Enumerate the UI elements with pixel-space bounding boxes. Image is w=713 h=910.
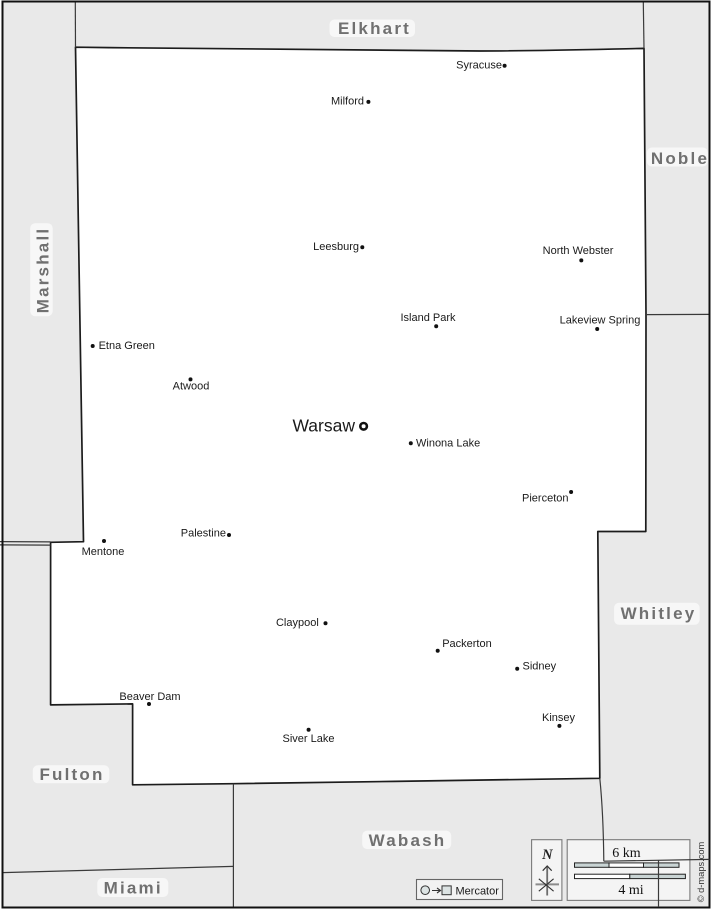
svg-text:Winona Lake: Winona Lake bbox=[416, 438, 480, 450]
svg-text:Beaver Dam: Beaver Dam bbox=[119, 691, 180, 703]
svg-text:Mentone: Mentone bbox=[82, 546, 125, 558]
svg-text:Whitley: Whitley bbox=[621, 604, 697, 623]
svg-text:Noble: Noble bbox=[651, 149, 709, 168]
svg-text:Wabash: Wabash bbox=[369, 831, 447, 850]
svg-text:Elkhart: Elkhart bbox=[338, 19, 411, 38]
svg-text:Sidney: Sidney bbox=[523, 661, 557, 673]
svg-text:Miami: Miami bbox=[104, 879, 163, 898]
svg-text:Warsaw: Warsaw bbox=[292, 415, 355, 435]
svg-text:Lakeview Spring: Lakeview Spring bbox=[560, 314, 641, 326]
svg-text:North Webster: North Webster bbox=[543, 245, 614, 257]
svg-text:4 mi: 4 mi bbox=[618, 883, 643, 898]
svg-text:Island Park: Island Park bbox=[400, 312, 456, 324]
svg-text:Syracuse: Syracuse bbox=[456, 60, 502, 72]
svg-text:Leesburg: Leesburg bbox=[313, 241, 359, 253]
svg-text:Claypool: Claypool bbox=[276, 617, 319, 629]
svg-text:Atwood: Atwood bbox=[173, 380, 210, 392]
svg-text:Mercator: Mercator bbox=[456, 886, 500, 898]
svg-text:Milford: Milford bbox=[331, 96, 364, 108]
svg-text:Pierceton: Pierceton bbox=[522, 493, 568, 505]
svg-text:Marshall: Marshall bbox=[34, 227, 53, 314]
svg-text:Siver Lake: Siver Lake bbox=[283, 733, 335, 745]
svg-text:N: N bbox=[541, 847, 553, 863]
svg-text:Etna Green: Etna Green bbox=[99, 340, 155, 352]
svg-text:Packerton: Packerton bbox=[442, 638, 492, 650]
svg-text:© d-maps.com: © d-maps.com bbox=[696, 841, 706, 902]
svg-text:6 km: 6 km bbox=[612, 846, 641, 861]
svg-text:Palestine: Palestine bbox=[181, 527, 226, 539]
svg-text:Fulton: Fulton bbox=[39, 765, 104, 784]
svg-text:Kinsey: Kinsey bbox=[542, 712, 576, 724]
